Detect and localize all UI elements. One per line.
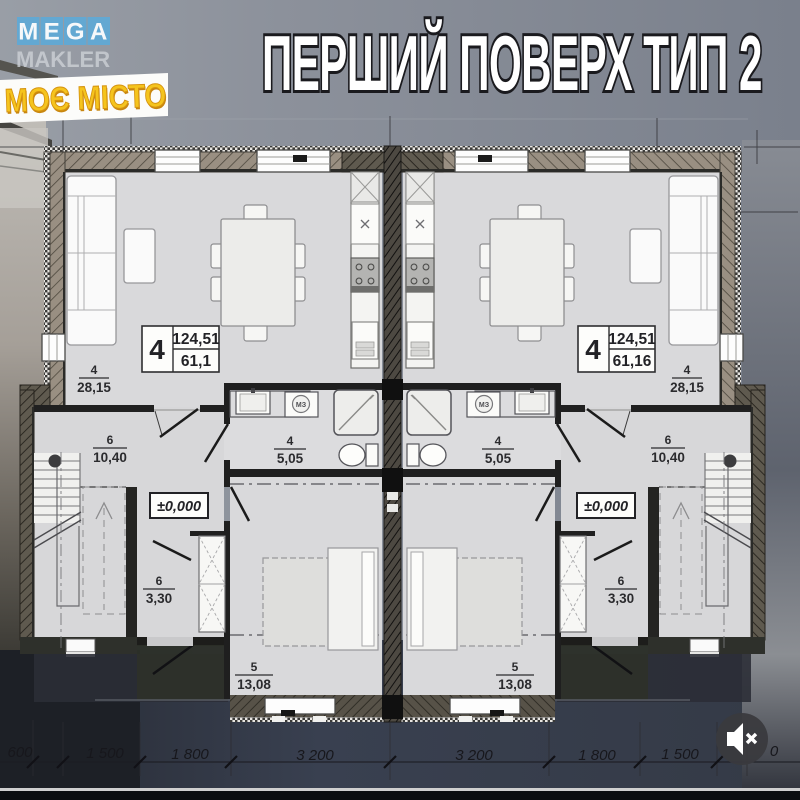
svg-text:±0,000: ±0,000 — [584, 499, 628, 515]
svg-text:6: 6 — [665, 433, 672, 447]
svg-text:5: 5 — [512, 660, 519, 674]
svg-text:A: A — [90, 19, 107, 46]
svg-text:600: 600 — [7, 744, 33, 761]
svg-text:61,16: 61,16 — [613, 353, 652, 370]
svg-text:3,30: 3,30 — [146, 591, 172, 606]
svg-text:6: 6 — [618, 574, 625, 588]
svg-text:124,51: 124,51 — [608, 331, 656, 348]
svg-text:4: 4 — [149, 334, 165, 365]
svg-text:10,40: 10,40 — [651, 450, 685, 465]
svg-text:1 800: 1 800 — [578, 747, 616, 764]
svg-text:G: G — [66, 19, 85, 46]
svg-text:3 200: 3 200 — [455, 747, 493, 764]
svg-text:ПЕРШИЙ ПОВЕРХ ТИП 2: ПЕРШИЙ ПОВЕРХ ТИП 2 — [262, 19, 762, 107]
svg-text:МЗ: МЗ — [296, 402, 307, 409]
svg-text:1 500: 1 500 — [661, 746, 699, 763]
svg-text:1 500: 1 500 — [86, 745, 124, 762]
svg-text:10,40: 10,40 — [93, 450, 127, 465]
svg-text:6: 6 — [107, 433, 114, 447]
svg-text:5,05: 5,05 — [277, 451, 304, 466]
svg-text:4: 4 — [91, 363, 98, 377]
svg-text:4: 4 — [684, 363, 691, 377]
svg-text:0: 0 — [770, 743, 779, 760]
svg-text:124,51: 124,51 — [172, 331, 220, 348]
svg-text:13,08: 13,08 — [498, 677, 532, 692]
svg-text:28,15: 28,15 — [670, 380, 704, 395]
svg-text:МОЄ МІСТО: МОЄ МІСТО — [4, 77, 167, 119]
svg-text:3,30: 3,30 — [608, 591, 634, 606]
svg-text:±0,000: ±0,000 — [157, 499, 201, 515]
svg-text:6: 6 — [156, 574, 163, 588]
svg-text:E: E — [44, 19, 60, 46]
svg-text:5: 5 — [251, 660, 258, 674]
svg-text:28,15: 28,15 — [77, 380, 111, 395]
svg-text:61,1: 61,1 — [181, 353, 212, 370]
svg-text:1 800: 1 800 — [171, 746, 209, 763]
svg-text:5,05: 5,05 — [485, 451, 512, 466]
svg-text:13,08: 13,08 — [237, 677, 271, 692]
svg-text:4: 4 — [495, 434, 502, 448]
svg-text:3 200: 3 200 — [296, 747, 334, 764]
svg-text:M: M — [18, 19, 38, 46]
svg-text:4: 4 — [585, 334, 601, 365]
svg-text:4: 4 — [287, 434, 294, 448]
svg-text:MAKLER: MAKLER — [16, 47, 110, 72]
svg-text:МЗ: МЗ — [479, 402, 490, 409]
